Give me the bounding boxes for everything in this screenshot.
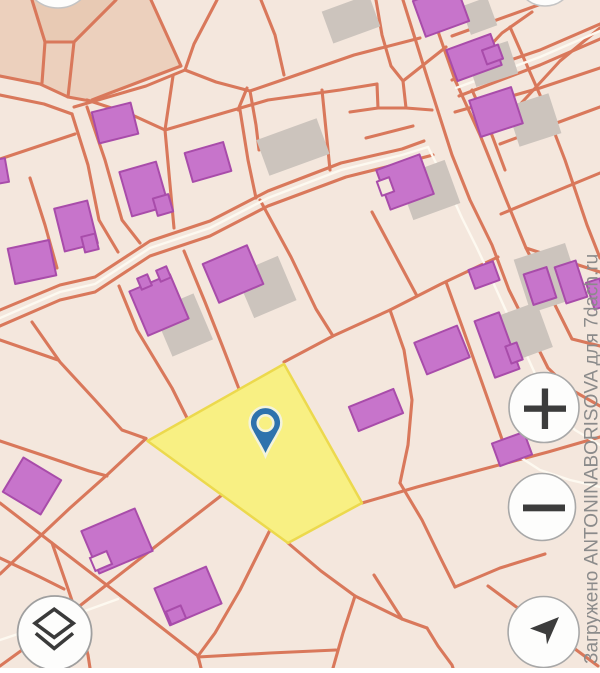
svg-text:Загружено ANTONINABORISOVA для: Загружено ANTONINABORISOVA для 7dach.ru — [582, 254, 600, 664]
